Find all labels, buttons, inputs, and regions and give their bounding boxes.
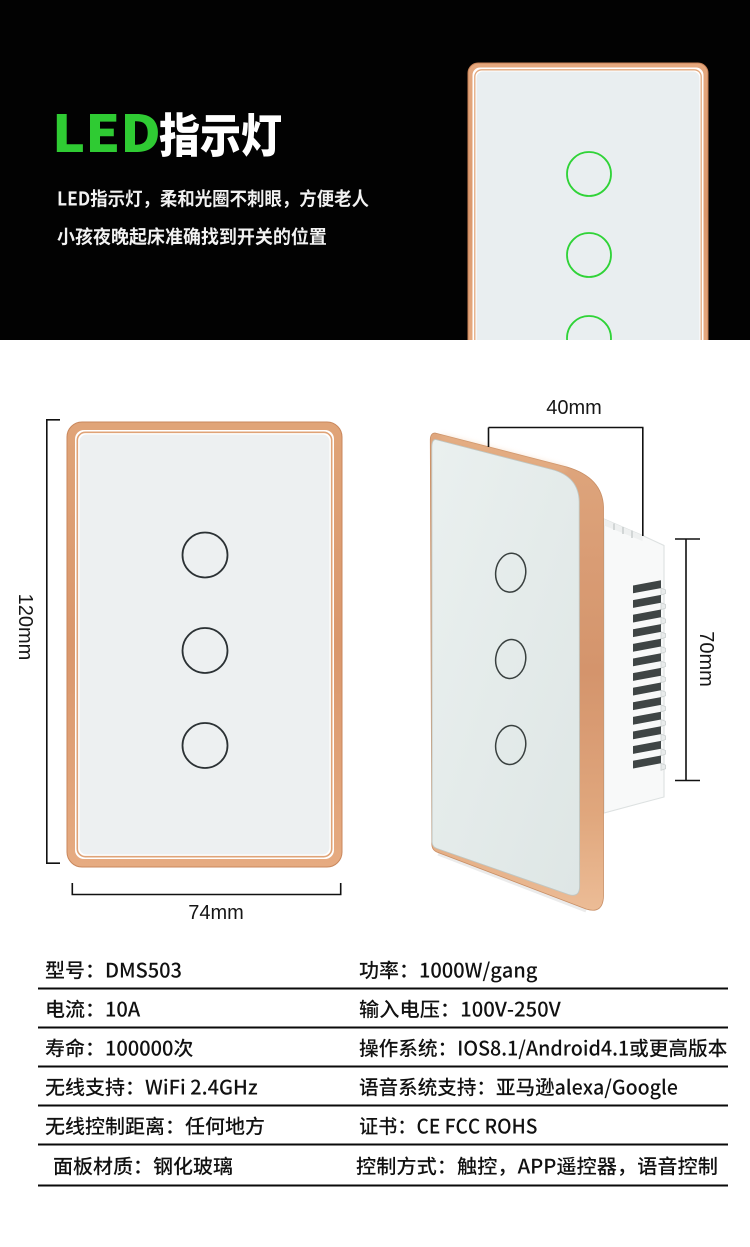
svg-text:40mm: 40mm <box>546 397 602 419</box>
svg-text:74mm: 74mm <box>188 902 244 924</box>
svg-text:120mm: 120mm <box>14 594 36 661</box>
svg-text:70mm: 70mm <box>695 631 717 687</box>
